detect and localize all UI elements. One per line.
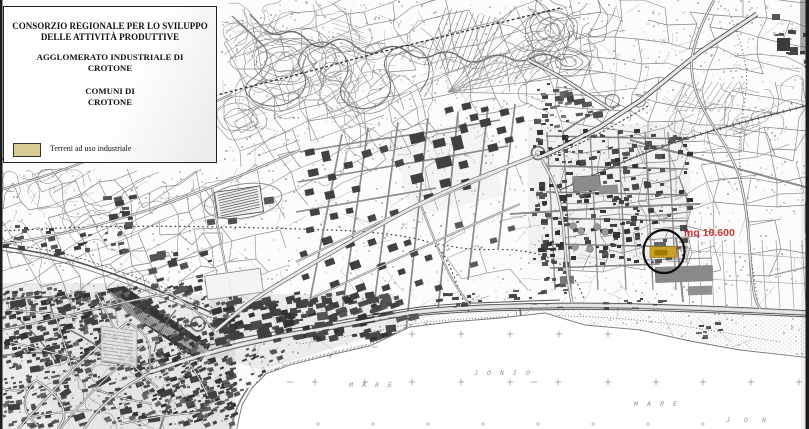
svg-text:mq 10.600: mq 10.600 <box>684 227 735 239</box>
